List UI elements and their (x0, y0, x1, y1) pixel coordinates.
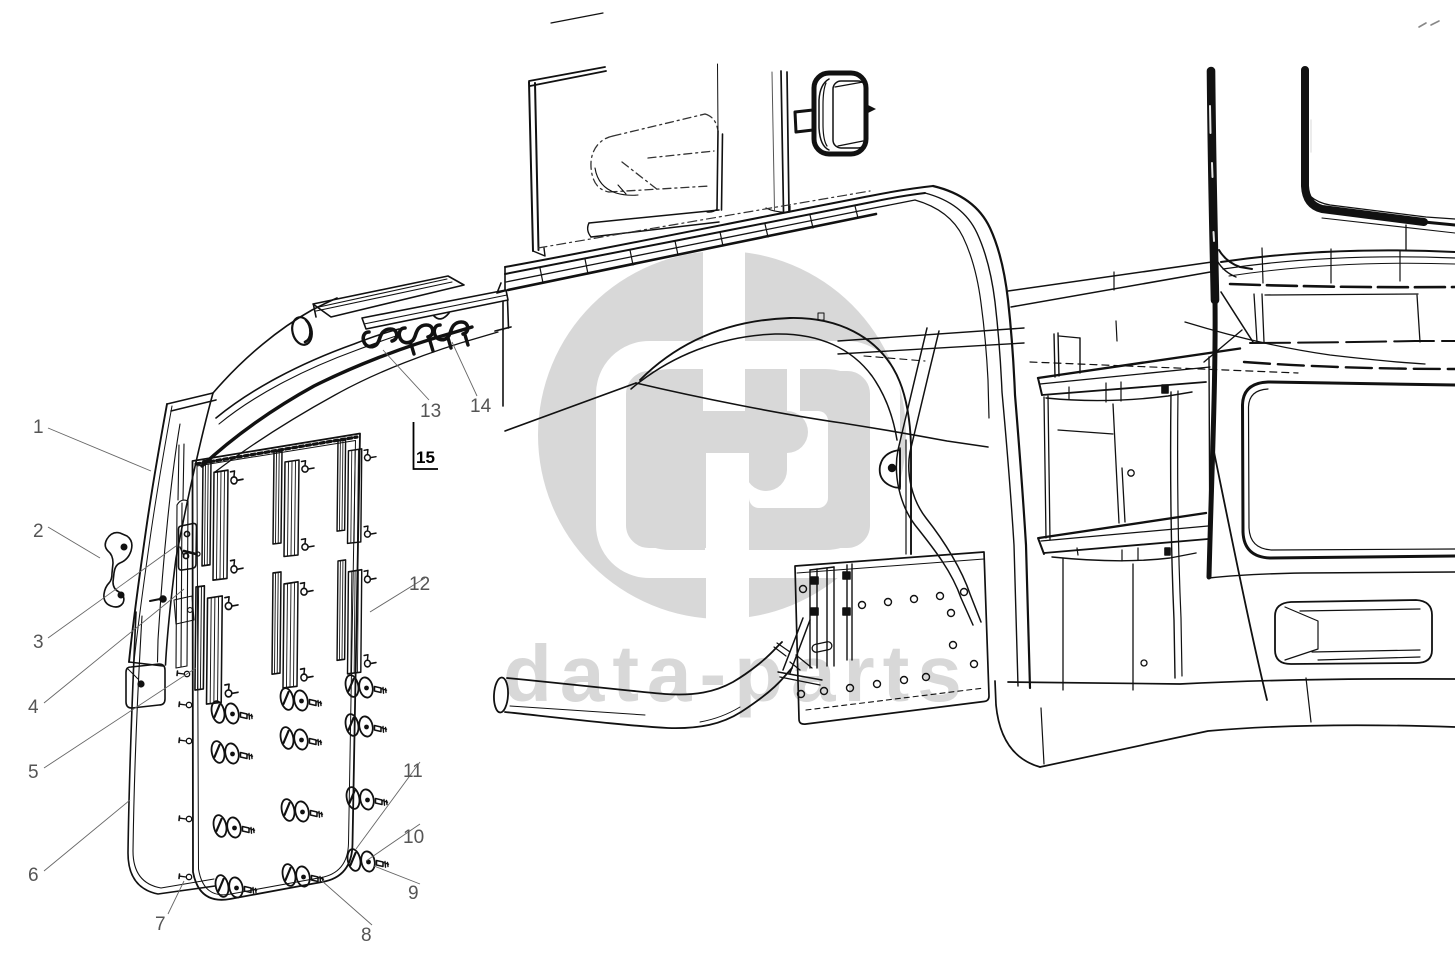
svg-text:7: 7 (155, 914, 166, 935)
svg-text:2: 2 (33, 521, 44, 542)
svg-text:12: 12 (409, 574, 430, 595)
svg-text:data-parts: data-parts (503, 629, 970, 718)
svg-text:15: 15 (416, 448, 435, 467)
svg-text:5: 5 (28, 762, 39, 783)
svg-text:9: 9 (408, 883, 419, 904)
svg-text:14: 14 (470, 396, 492, 417)
svg-text:13: 13 (420, 401, 441, 422)
svg-text:3: 3 (33, 632, 44, 653)
svg-text:10: 10 (403, 827, 424, 848)
svg-text:6: 6 (28, 865, 39, 886)
svg-text:11: 11 (403, 761, 423, 782)
svg-text:1: 1 (33, 417, 44, 438)
svg-text:8: 8 (361, 925, 372, 946)
svg-text:4: 4 (28, 697, 39, 718)
